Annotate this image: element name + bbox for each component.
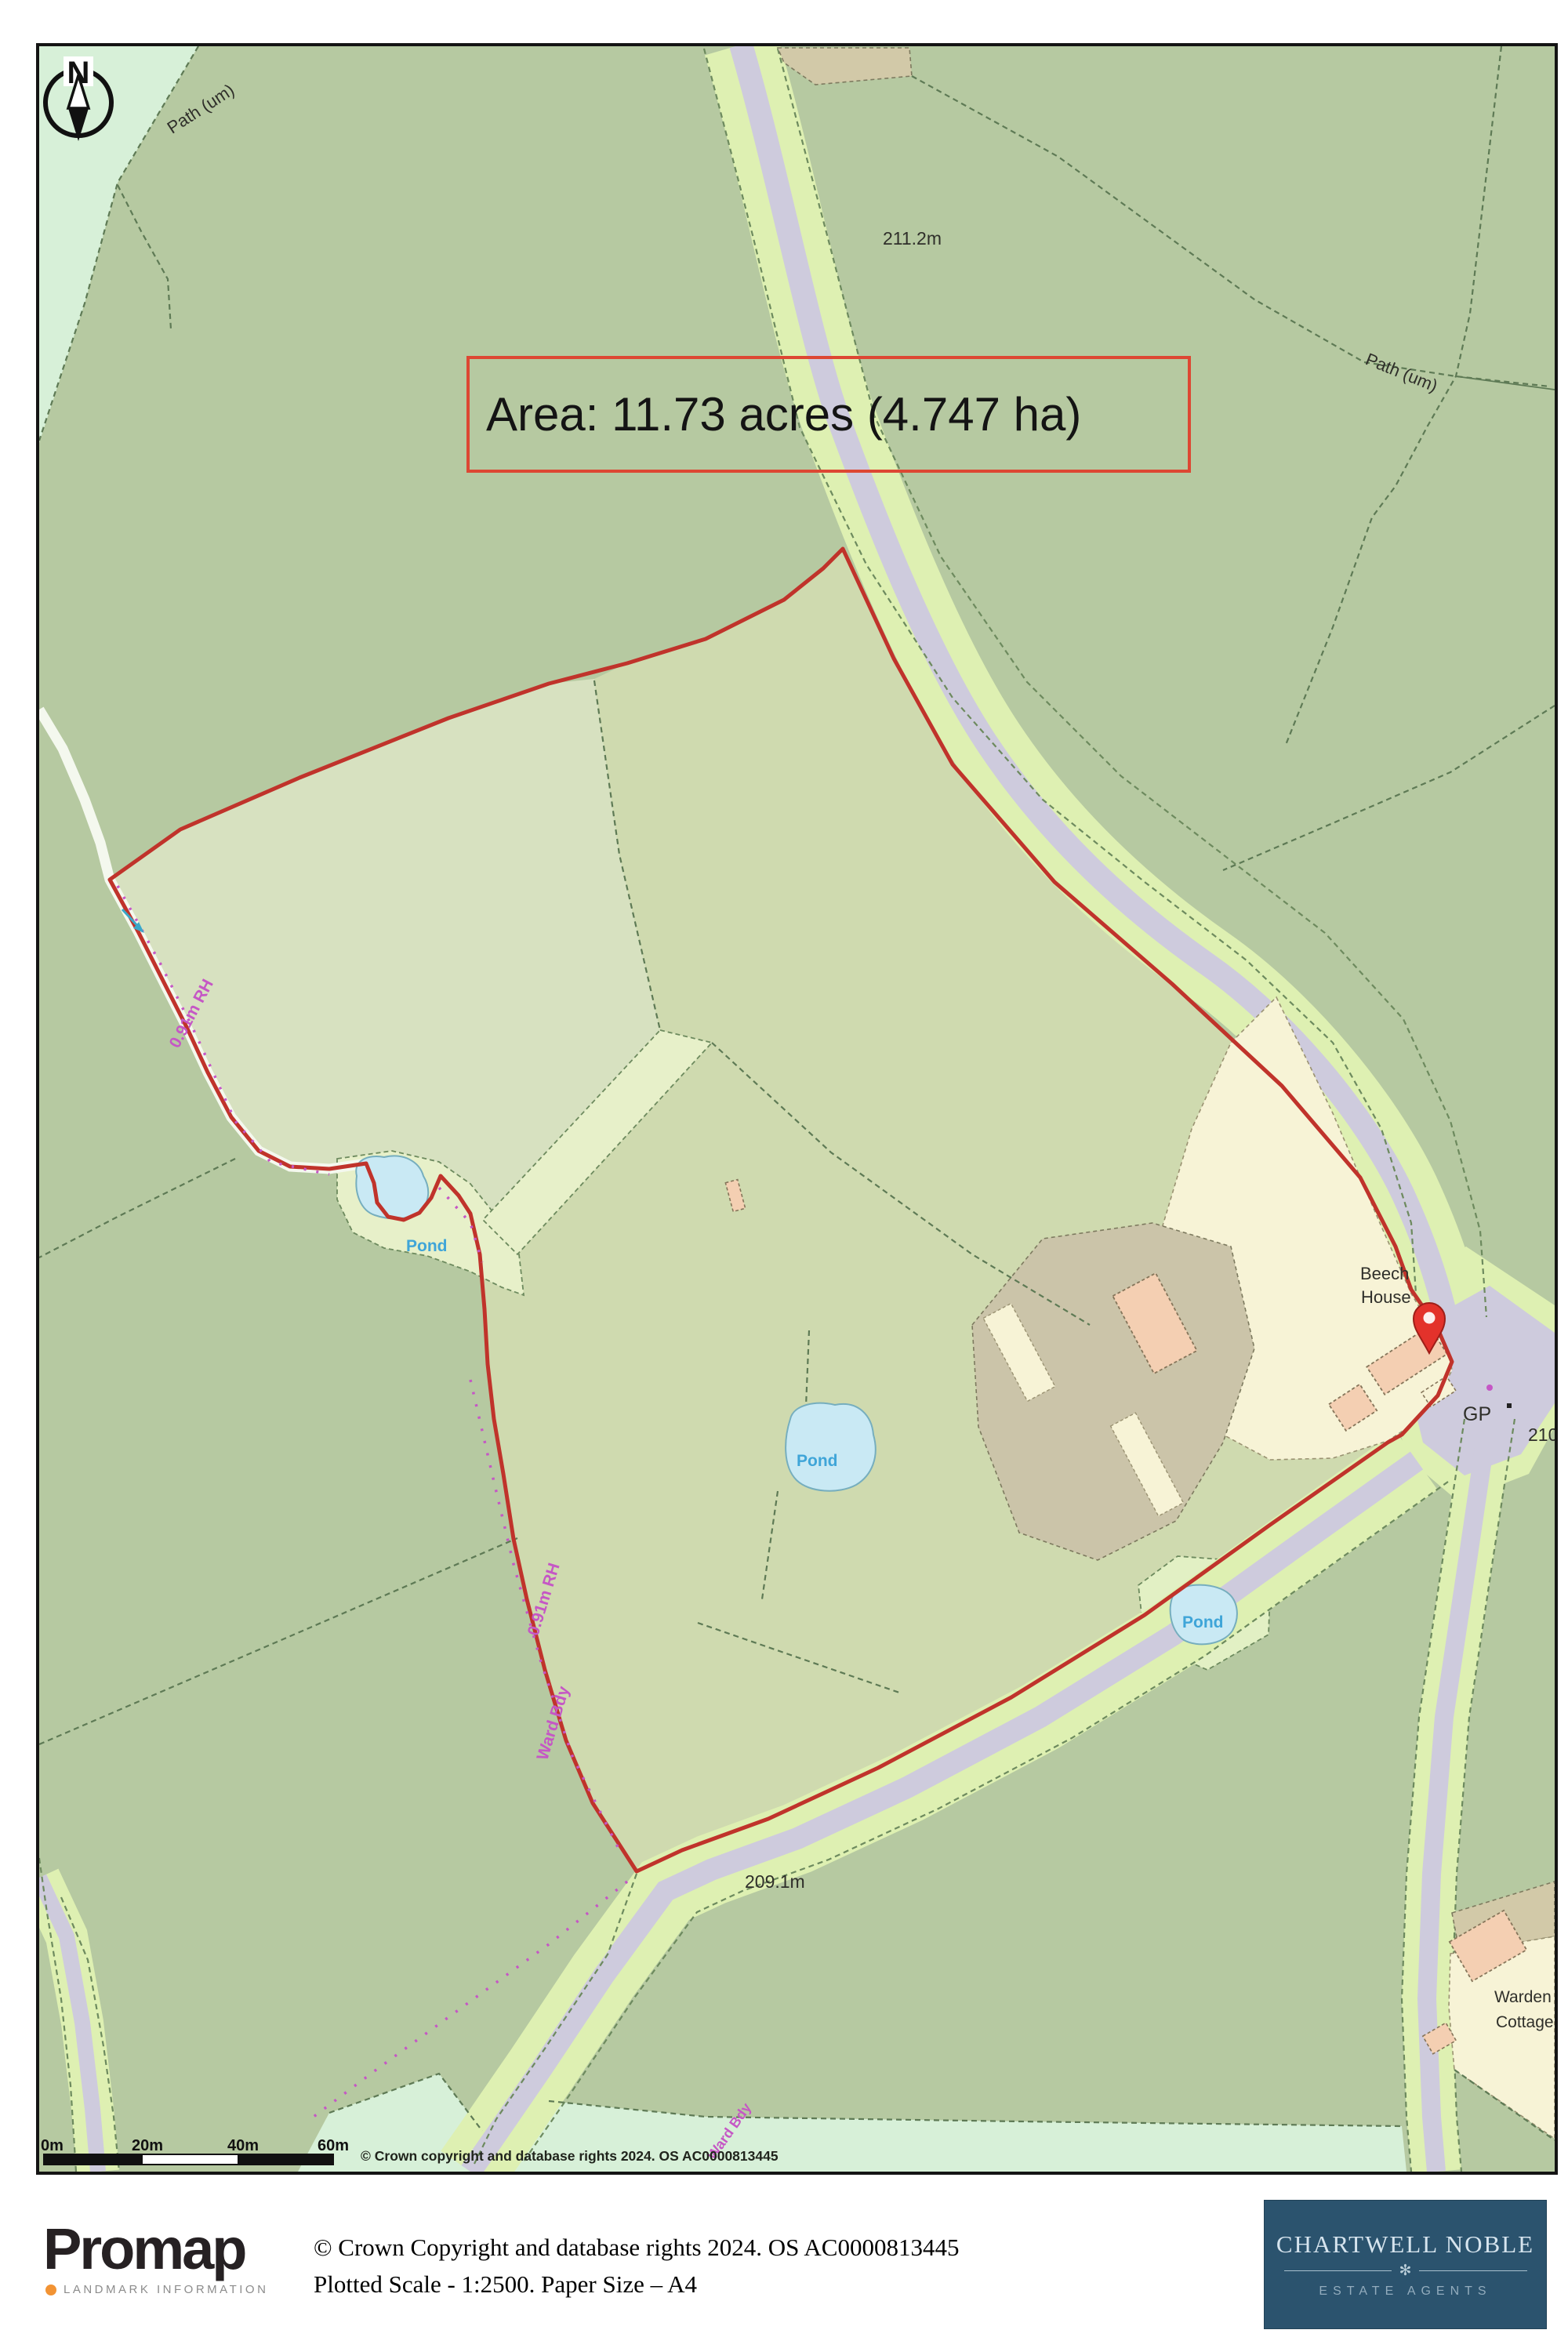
pond-label-centre: Pond	[797, 1452, 838, 1470]
spot-height-209: 209.1m	[745, 1871, 805, 1892]
compass-north-label: N	[67, 56, 90, 90]
agent-name: CHARTWELL NOBLE	[1276, 2230, 1534, 2259]
pond-label-west: Pond	[406, 1237, 448, 1255]
agent-rule: ✻	[1284, 2263, 1527, 2278]
pond-label-south: Pond	[1182, 1613, 1224, 1631]
landmark-label: LANDMARK INFORMATION	[64, 2283, 268, 2296]
promap-logo: Promap	[43, 2220, 245, 2278]
boundary-dot	[1486, 1384, 1493, 1391]
warden-label-2: Cottage	[1496, 2013, 1554, 2031]
map-plot: Path (um) Path (um) 211.2m 209.1m 210 GP…	[36, 43, 1558, 2175]
scale-tick-60: 60m	[318, 2137, 349, 2154]
footer-copyright-line1: © Crown Copyright and database rights 20…	[314, 2229, 959, 2266]
spot-height-210: 210	[1528, 1424, 1555, 1445]
landmark-dot-icon	[45, 2284, 56, 2295]
beech-house-label-2: House	[1361, 1287, 1411, 1307]
scale-tick-20: 20m	[132, 2137, 163, 2154]
guide-post-dot	[1507, 1403, 1512, 1408]
gp-label: GP	[1463, 1403, 1491, 1425]
footer-copyright-line2: Plotted Scale - 1:2500. Paper Size – A4	[314, 2266, 959, 2303]
scale-tick-0: 0m	[41, 2137, 64, 2154]
agent-subtitle: ESTATE AGENTS	[1319, 2284, 1491, 2299]
chartwell-noble-logo: CHARTWELL NOBLE ✻ ESTATE AGENTS	[1264, 2200, 1547, 2329]
map-copyright: © Crown copyright and database rights 20…	[361, 2148, 779, 2164]
beech-house-label-1: Beech	[1360, 1264, 1409, 1283]
os-map-canvas: Path (um) Path (um) 211.2m 209.1m 210 GP…	[39, 46, 1555, 2172]
footer-copyright-block: © Crown Copyright and database rights 20…	[314, 2229, 959, 2303]
scale-tick-40: 40m	[227, 2137, 259, 2154]
agent-ornament-icon: ✻	[1399, 2263, 1412, 2278]
pond-centre	[786, 1403, 876, 1491]
landmark-lockup: LANDMARK INFORMATION	[45, 2283, 268, 2296]
warden-label-1: Warden	[1494, 1988, 1552, 2006]
spot-height-211: 211.2m	[883, 228, 942, 249]
road-east-spur-grey	[1472, 1362, 1555, 1377]
area-annotation-text: Area: 11.73 acres (4.747 ha)	[486, 388, 1081, 441]
